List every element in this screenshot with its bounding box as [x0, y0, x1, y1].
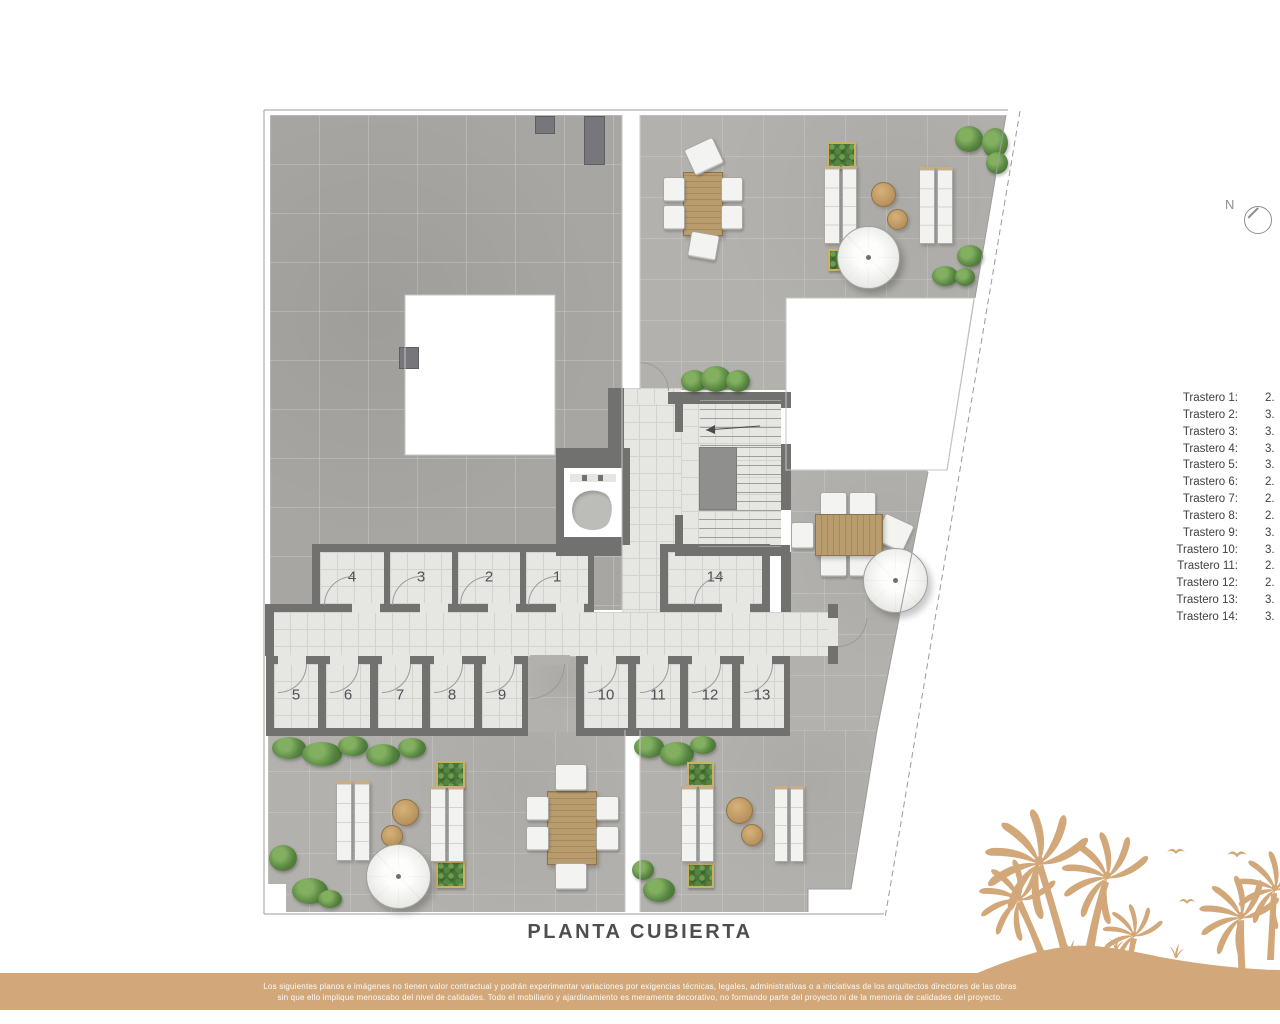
- compass-circle-icon: [1244, 206, 1272, 234]
- door-gap: [420, 603, 448, 613]
- door-gap: [556, 603, 584, 613]
- sun-loungers: [919, 167, 953, 244]
- chair: [663, 205, 685, 230]
- room-number: 2: [458, 569, 520, 586]
- sun-lounger: [430, 786, 446, 862]
- parasol: [837, 226, 900, 289]
- sun-lounger: [681, 786, 697, 862]
- dining-table: [547, 791, 597, 865]
- sun-lounger: [699, 786, 715, 862]
- chimney: [535, 116, 555, 134]
- chimney: [584, 116, 605, 165]
- room-number: 1: [526, 569, 588, 586]
- dining-table: [815, 514, 883, 556]
- corridor-horizontal: [273, 612, 836, 656]
- storage-list-item: Trastero 13:3.: [1176, 592, 1280, 609]
- storage-list-item: Trastero 3:3.: [1176, 424, 1280, 441]
- side-table: [887, 209, 908, 230]
- dining-table: [683, 172, 723, 236]
- bush: [269, 845, 297, 871]
- stair-landing: [699, 447, 737, 510]
- room-number: 3: [390, 569, 452, 586]
- storage-list-item: Trastero 6:2.: [1176, 474, 1280, 491]
- sun-lounger: [919, 167, 935, 244]
- bush: [955, 268, 975, 286]
- chair: [687, 231, 720, 262]
- side-table: [871, 182, 896, 207]
- planter: [436, 861, 465, 888]
- planter: [436, 761, 465, 788]
- wall: [675, 392, 683, 432]
- elevator-door-tick: [598, 475, 603, 481]
- sun-lounger: [336, 781, 352, 861]
- bush: [632, 860, 654, 880]
- bush: [986, 152, 1008, 174]
- stairs-lower: [699, 510, 781, 553]
- chair: [555, 863, 587, 890]
- bush: [643, 878, 675, 902]
- bush: [338, 736, 368, 756]
- disclaimer-band: Los siguientes planos e imágenes no tien…: [0, 973, 1280, 1010]
- elevator-door: [570, 474, 616, 482]
- elevator-door-tick: [582, 475, 587, 481]
- side-table: [726, 797, 753, 824]
- chair: [820, 492, 847, 516]
- chair: [849, 492, 876, 516]
- storage-list-item: Trastero 12:2.: [1176, 575, 1280, 592]
- chair: [721, 177, 743, 202]
- floor-plan-page: 4 3 2 1 14 5 6 7 8 9 10 11 12 13: [0, 0, 1280, 1024]
- parasol: [366, 844, 431, 909]
- sun-lounger: [774, 786, 788, 862]
- storage-list-item: Trastero 1:2.: [1176, 390, 1280, 407]
- planter: [687, 863, 714, 888]
- sun-loungers: [774, 786, 804, 862]
- storage-list-item: Trastero 14:3.: [1176, 609, 1280, 626]
- storage-list-item: Trastero 5:3.: [1176, 457, 1280, 474]
- storage-list-item: Trastero 11:2.: [1176, 558, 1280, 575]
- bush: [398, 738, 426, 758]
- storage-room-list: Trastero 1:2. Trastero 2:3. Trastero 3:3…: [1176, 390, 1280, 626]
- compass: N: [1225, 195, 1277, 237]
- planter: [827, 142, 856, 169]
- chair: [555, 764, 587, 791]
- parasol: [863, 548, 928, 613]
- bush: [272, 737, 306, 759]
- chair: [791, 522, 814, 549]
- door-gap: [722, 603, 750, 613]
- sun-lounger: [824, 166, 840, 244]
- skylight-void-left: [405, 295, 555, 455]
- stairs-upper: [700, 400, 781, 447]
- bush: [957, 245, 983, 267]
- sun-lounger: [448, 786, 464, 862]
- sun-loungers: [430, 786, 464, 862]
- chimney: [399, 347, 419, 369]
- chair: [526, 796, 549, 821]
- side-table: [741, 824, 763, 846]
- disclaimer-line-1: Los siguientes planos e imágenes no tien…: [0, 981, 1280, 992]
- page-title: PLANTA CUBIERTA: [440, 921, 840, 944]
- storage-list-item: Trastero 4:3.: [1176, 441, 1280, 458]
- door-gap-east: [828, 618, 838, 646]
- storage-list-item: Trastero 8:2.: [1176, 508, 1280, 525]
- bush: [318, 890, 342, 908]
- sun-loungers: [336, 781, 370, 861]
- side-table: [392, 799, 419, 826]
- stairs-right: [737, 447, 781, 510]
- bush: [366, 744, 400, 766]
- chair: [596, 826, 619, 851]
- sun-lounger: [790, 786, 804, 862]
- storage-list-item: Trastero 9:3.: [1176, 525, 1280, 542]
- stair-window: [781, 408, 791, 444]
- wall: [265, 604, 274, 656]
- chair: [526, 826, 549, 851]
- bush: [690, 736, 716, 754]
- sun-loungers: [681, 786, 714, 862]
- door-gap: [488, 603, 516, 613]
- sun-lounger: [937, 167, 953, 244]
- bush: [726, 370, 750, 392]
- compass-north-label: N: [1225, 197, 1234, 212]
- wall: [608, 388, 624, 454]
- door-gap: [352, 603, 380, 613]
- planter: [687, 762, 714, 787]
- chair: [596, 796, 619, 821]
- chair: [820, 553, 847, 577]
- bush: [955, 126, 983, 152]
- storage-list-item: Trastero 10:3.: [1176, 542, 1280, 559]
- storage-list-item: Trastero 2:3.: [1176, 407, 1280, 424]
- bush: [302, 742, 342, 766]
- wall: [556, 545, 622, 556]
- sun-lounger: [354, 781, 370, 861]
- skylight-void-right: [786, 298, 976, 470]
- chair: [663, 177, 685, 202]
- chair: [721, 205, 743, 230]
- storage-list-item: Trastero 7:2.: [1176, 491, 1280, 508]
- disclaimer-line-2: sin que ello implique menoscabo del nive…: [0, 992, 1280, 1003]
